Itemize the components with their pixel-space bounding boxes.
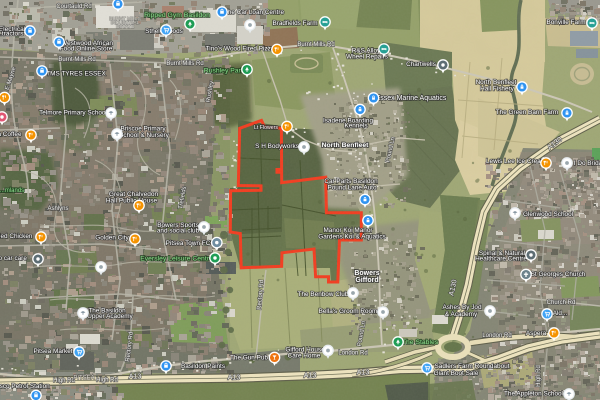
svg-text:S H Bodyworks: S H Bodyworks [255, 143, 299, 150]
svg-text:ESTATE: ESTATE [116, 24, 134, 30]
svg-text:Burnt Mills Rd: Burnt Mills Rd [58, 57, 95, 63]
svg-text:Rushley Park: Rushley Park [204, 68, 245, 75]
svg-text:Kennels: Kennels [344, 123, 367, 130]
svg-text:The Appleton School: The Appleton School [504, 391, 563, 398]
svg-text:Glenwood School: Glenwood School [523, 211, 573, 218]
svg-text:London Rd: London Rd [482, 333, 511, 339]
svg-text:Healthcare Centre: Healthcare Centre [475, 256, 527, 263]
svg-text:...mlands: ...mlands [0, 188, 24, 194]
svg-text:The Car Loan Centre: The Car Loan Centre [224, 9, 284, 16]
svg-text:Pound Lane Auto: Pound Lane Auto [327, 185, 376, 192]
svg-text:Sadlers Farm Roundabout: Sadlers Farm Roundabout [435, 363, 510, 370]
svg-text:Aspera: Aspera [526, 330, 547, 337]
svg-text:...tractors: ...tractors [0, 31, 24, 38]
svg-text:The Gun Pub: The Gun Pub [230, 355, 268, 362]
svg-text:Church Rd: Church Rd [547, 300, 576, 306]
svg-text:The Green Barn Farm: The Green Barn Farm [496, 109, 559, 116]
svg-text:Lewis Lee Ice Cream: Lewis Lee Ice Cream [486, 158, 546, 165]
svg-text:The Stables: The Stables [402, 339, 439, 346]
svg-text:and social club: and social club [157, 228, 200, 235]
svg-text:TMS TYRES ESSEX: TMS TYRES ESSEX [46, 71, 106, 78]
svg-text:Upper Academy: Upper Academy [87, 313, 133, 320]
svg-text:Bradfields Farm: Bradfields Farm [272, 20, 317, 27]
svg-text:Food Online Store: Food Online Store [60, 46, 113, 53]
svg-text:Telmore Primary School: Telmore Primary School [39, 110, 107, 117]
svg-text:Burnt Mills Rd: Burnt Mills Rd [297, 42, 334, 48]
svg-text:Ashes By Jod: Ashes By Jod [442, 304, 482, 311]
svg-text:The Benbow Club: The Benbow Club [298, 291, 349, 298]
svg-text:Gardens Koi & Aquatics: Gardens Koi & Aquatics [318, 234, 386, 241]
svg-text:Care Home: Care Home [288, 353, 321, 360]
svg-text:A13: A13 [357, 370, 370, 377]
svg-text:Ashlyns: Ashlyns [47, 206, 68, 212]
svg-text:North Benfleet: North Benfleet [322, 142, 370, 149]
svg-text:Essex Marine Aquatics: Essex Marine Aquatics [376, 95, 447, 102]
svg-text:High Rd: High Rd [536, 365, 542, 387]
svg-text:St Georges Church: St Georges Church [531, 271, 586, 278]
svg-text:...ried Chicken: ...ried Chicken [0, 233, 33, 240]
svg-text:Lt Flowers: Lt Flowers [254, 125, 278, 131]
svg-text:Ald...: Ald... [553, 310, 568, 317]
svg-text:Pitsea Town FC: Pitsea Town FC [166, 240, 211, 247]
svg-text:PITSEA: PITSEA [73, 376, 94, 382]
svg-text:A13: A13 [304, 373, 317, 380]
svg-text:Courtauld Rd: Courtauld Rd [56, 4, 91, 10]
svg-text:London Rd: London Rd [338, 351, 367, 357]
svg-text:I Do Brida: I Do Brida [574, 160, 600, 167]
svg-text:sta Coffee: sta Coffee [0, 131, 22, 138]
svg-text:A13: A13 [228, 375, 241, 382]
svg-text:Eversley Leisure Centre: Eversley Leisure Centre [140, 256, 213, 263]
svg-text:Chartwells: Chartwells [406, 61, 436, 68]
svg-text:Hall Public House: Hall Public House [106, 198, 158, 205]
svg-text:Pitsea Market: Pitsea Market [33, 348, 72, 355]
svg-text:Bowers: Bowers [354, 270, 379, 277]
svg-text:School & Nursery: School & Nursery [119, 132, 170, 139]
svg-text:Giant Boot Sale: Giant Boot Sale [434, 370, 479, 377]
svg-text:Hall Fishery: Hall Fishery [480, 86, 515, 93]
svg-text:& Academy: & Academy [445, 311, 478, 318]
svg-text:uto car care: uto car care [0, 255, 27, 262]
svg-text:Bonville Farm: Bonville Farm [546, 19, 585, 26]
svg-text:Basildon Paints: Basildon Paints [181, 363, 225, 370]
svg-text:Ripped Gym Basildon: Ripped Gym Basildon [144, 12, 210, 19]
svg-text:Bella's Groom Room: Bella's Groom Room [319, 308, 378, 315]
svg-text:High Rd: High Rd [96, 378, 118, 384]
svg-text:Wheel Repairs: Wheel Repairs [346, 54, 388, 61]
svg-text:Tino's Wood Fired Pizza: Tino's Wood Fired Pizza [206, 46, 275, 53]
svg-text:High Rd: High Rd [53, 378, 75, 384]
svg-text:Golden City: Golden City [95, 235, 129, 242]
svg-text:Burnt Mills Rd: Burnt Mills Rd [166, 61, 203, 67]
svg-text:...sco Petrol Station: ...sco Petrol Station [0, 383, 50, 390]
svg-text:A13: A13 [129, 374, 142, 381]
svg-text:Gifford: Gifford [355, 277, 378, 284]
